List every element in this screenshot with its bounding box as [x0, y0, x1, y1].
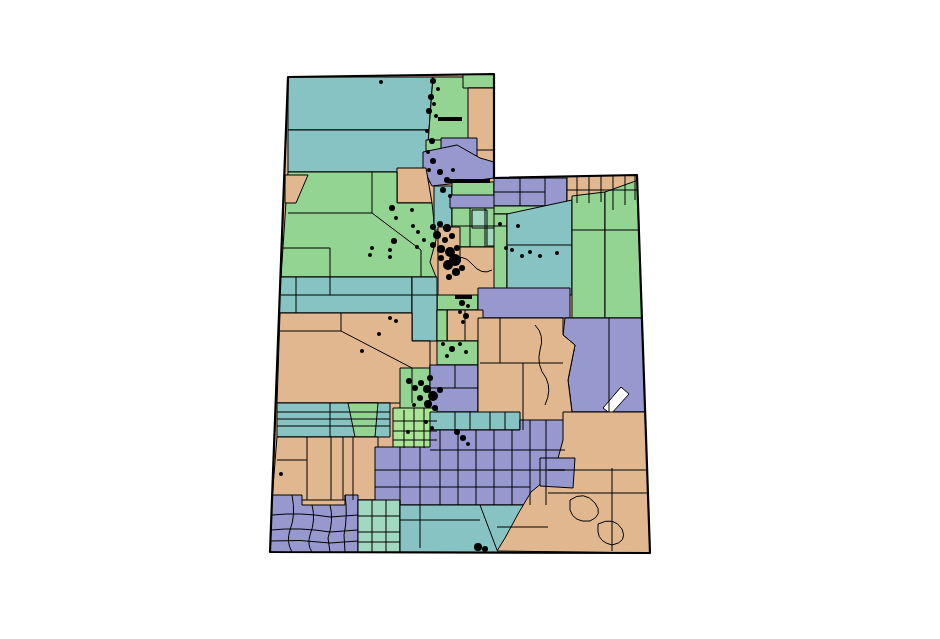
- urban-tract-blob: [388, 255, 392, 259]
- urban-tract-dash: [448, 179, 490, 183]
- urban-tract-blob: [432, 102, 436, 106]
- urban-tract-blob: [449, 233, 455, 239]
- urban-tract-blob: [434, 114, 438, 118]
- urban-tract-blob: [461, 320, 465, 324]
- urban-tract-blob: [459, 265, 465, 271]
- map-region-green: [572, 192, 605, 318]
- urban-tract-dash: [438, 117, 462, 121]
- urban-tract-blob: [416, 230, 420, 234]
- map-region-tan: [397, 168, 432, 203]
- urban-tract-blob: [388, 248, 392, 252]
- urban-tract-blob: [446, 274, 452, 280]
- urban-tract-blob: [426, 108, 432, 114]
- urban-tract-blob: [279, 472, 283, 476]
- urban-tract-blob: [432, 405, 438, 411]
- urban-tract-blob: [388, 316, 392, 320]
- urban-tract-blob: [406, 430, 410, 434]
- urban-tract-blob: [498, 222, 502, 226]
- urban-tract-blob: [466, 304, 470, 308]
- urban-tract-blob: [451, 168, 455, 172]
- urban-tract-dash: [455, 295, 472, 299]
- urban-tract-blob: [441, 342, 445, 346]
- map-region-green: [437, 310, 447, 341]
- urban-tract-blob: [452, 268, 460, 276]
- urban-tract-blob: [444, 177, 450, 183]
- urban-tract-blob: [422, 238, 426, 242]
- urban-tract-blob: [466, 442, 470, 446]
- urban-tract-blob: [459, 300, 465, 306]
- urban-tract-blob: [555, 251, 559, 255]
- urban-tract-blob: [458, 310, 462, 314]
- map-region-green: [463, 74, 494, 88]
- urban-tract-blob: [360, 349, 364, 353]
- urban-tract-blob: [377, 332, 381, 336]
- urban-tract-blob: [418, 380, 424, 386]
- urban-tract-blob: [433, 231, 441, 239]
- map-region-teal: [507, 200, 572, 295]
- urban-tract-blob: [394, 319, 398, 323]
- map-region-purple: [563, 318, 646, 412]
- map-stage: [0, 0, 940, 639]
- urban-tract-blob: [458, 342, 462, 346]
- urban-tract-blob: [440, 187, 446, 193]
- urban-tract-blob: [423, 385, 431, 393]
- urban-tract-blob: [379, 80, 383, 84]
- urban-tract-blob: [437, 221, 443, 227]
- urban-tract-blob: [412, 403, 416, 407]
- urban-tract-blob: [454, 245, 460, 251]
- urban-tract-blob: [430, 224, 436, 230]
- map-region-purple: [478, 288, 570, 318]
- urban-tract-blob: [406, 378, 412, 384]
- urban-tract-blob: [394, 216, 398, 220]
- urban-tract-blob: [425, 129, 429, 133]
- urban-tract-blob: [538, 254, 542, 258]
- urban-tract-blob: [428, 391, 438, 401]
- urban-tract-blob: [430, 158, 436, 164]
- urban-tract-blob: [443, 224, 451, 232]
- urban-tract-blob: [437, 387, 443, 393]
- urban-tract-blob: [454, 429, 460, 435]
- map-region-teal: [288, 77, 433, 130]
- urban-tract-blob: [437, 169, 443, 175]
- urban-tract-blob: [426, 150, 430, 154]
- urban-tract-blob: [430, 78, 436, 84]
- urban-tract-blob: [449, 346, 455, 352]
- urban-tract-blob: [412, 385, 418, 391]
- urban-tract-blob: [417, 395, 423, 401]
- map-regions-layer: [270, 74, 650, 554]
- urban-tract-blob: [437, 245, 445, 253]
- map-region-mint: [358, 500, 400, 554]
- map-region-teal: [288, 130, 429, 172]
- urban-tract-blob: [427, 168, 431, 172]
- urban-tract-blob: [510, 248, 514, 252]
- map-region-purple: [540, 458, 575, 488]
- urban-tract-blob: [443, 260, 453, 270]
- urban-tract-blob: [415, 245, 419, 249]
- urban-tract-blob: [428, 94, 434, 100]
- urban-tract-blob: [448, 194, 452, 198]
- urban-tract-blob: [438, 255, 444, 261]
- urban-tract-blob: [427, 375, 433, 381]
- map-region-teal: [430, 412, 520, 430]
- urban-tract-blob: [482, 546, 488, 552]
- urban-tract-blob: [411, 224, 415, 228]
- urban-tract-blob: [504, 246, 508, 250]
- urban-tract-blob: [368, 253, 372, 257]
- urban-tract-blob: [474, 543, 482, 551]
- urban-tract-blob: [516, 224, 520, 228]
- urban-tract-blob: [370, 246, 374, 250]
- urban-tract-blob: [445, 354, 449, 358]
- map-region-green: [452, 182, 494, 196]
- urban-tract-blob: [424, 400, 432, 408]
- urban-tract-blob: [410, 208, 414, 212]
- urban-tract-blob: [391, 238, 397, 244]
- urban-tract-blob: [528, 250, 532, 254]
- urban-tract-blob: [429, 138, 435, 144]
- urban-tract-blob: [463, 313, 469, 319]
- urban-tract-blob: [520, 254, 524, 258]
- utah-choropleth-map: [0, 0, 940, 639]
- map-region-teal: [412, 277, 437, 341]
- urban-tract-blob: [424, 420, 428, 424]
- urban-tract-blob: [430, 426, 434, 430]
- urban-tract-blob: [436, 87, 440, 91]
- urban-tract-blob: [464, 350, 468, 354]
- urban-tract-blob: [442, 237, 448, 243]
- map-region-tan: [272, 437, 378, 500]
- urban-tract-blob: [430, 242, 436, 248]
- urban-tract-blob: [460, 435, 466, 441]
- urban-tract-blob: [389, 205, 395, 211]
